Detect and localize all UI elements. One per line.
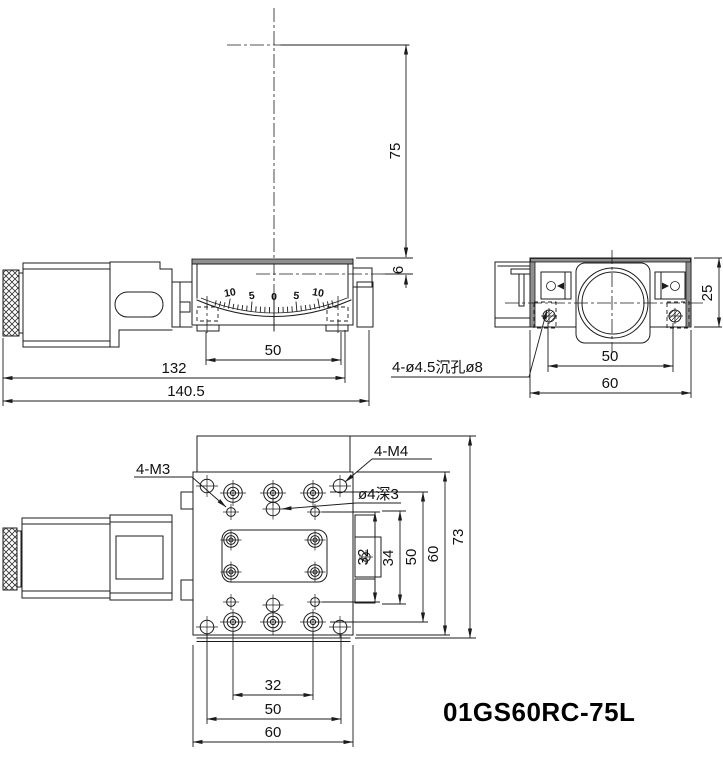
- dim-60-h: 60: [193, 645, 353, 747]
- end-view: 25 50 60 4-ø4.5沉孔ø8: [391, 250, 722, 398]
- dim-50v-text: 50: [403, 549, 420, 566]
- dim-50-side-text: 50: [265, 342, 282, 359]
- dim-75-text: 75: [387, 143, 404, 160]
- m3-callout: 4-M3: [134, 461, 226, 507]
- counterbore-note-text: 4-ø4.5沉孔ø8: [392, 359, 483, 376]
- drawing-canvas: 75 6 50 132 140.5 10 5 0 5: [0, 0, 723, 773]
- m3-label-text: 4-M3: [136, 461, 170, 478]
- dim-32-v: 32: [322, 512, 380, 602]
- micrometer-mount-end: [495, 262, 533, 327]
- dim-34v-text: 34: [380, 550, 397, 567]
- dim-32-h: 32: [233, 632, 313, 700]
- dim-50-side: 50: [206, 332, 341, 365]
- micrometer-body: [23, 263, 110, 347]
- dim-50-v: 50: [330, 492, 428, 622]
- scale-label-left-5: 5: [248, 290, 255, 302]
- dim-32h-text: 32: [265, 677, 282, 694]
- technical-drawing: 75 6 50 132 140.5 10 5 0 5: [0, 0, 723, 773]
- center-hole-label-text: ø4深3: [358, 486, 399, 503]
- dim-140-5-text: 140.5: [167, 383, 205, 400]
- scale-label-right-10: 10: [311, 286, 325, 300]
- mount-slot: [115, 292, 163, 317]
- dim-32v-text: 32: [355, 549, 372, 566]
- dim-60h-text: 60: [265, 724, 282, 741]
- micrometer-side: [3, 262, 192, 347]
- platform-overhang-top: [197, 436, 350, 472]
- platform-overhang-bottom: [197, 638, 350, 642]
- dim-25-text: 25: [699, 285, 716, 302]
- side-view: 75 6 50 132 140.5 10 5 0 5: [3, 8, 413, 406]
- dim-50-end-text: 50: [602, 348, 619, 365]
- scale-label-left-10: 10: [223, 286, 237, 300]
- right-adjuster-detail: [655, 272, 685, 299]
- part-number: 01GS60RC-75L: [443, 697, 635, 727]
- knurled-knob-plan: [3, 528, 17, 590]
- end-bracket-side: [353, 268, 373, 327]
- center-hole-callout: ø4深3: [282, 486, 401, 509]
- dim-60-end-text: 60: [602, 375, 619, 392]
- scale-label-0: 0: [271, 291, 277, 303]
- knurled-knob: [3, 270, 19, 336]
- m4-callout: 4-M4: [345, 443, 432, 482]
- dim-75: 75: [356, 45, 413, 258]
- dim-25: 25: [694, 258, 722, 327]
- dim-73v-text: 73: [450, 529, 467, 546]
- dim-132-text: 132: [161, 360, 186, 377]
- scale-label-right-5: 5: [293, 290, 300, 302]
- dim-6: 6: [385, 243, 413, 288]
- dim-50h-text: 50: [265, 701, 282, 718]
- m4-label-text: 4-M4: [374, 443, 408, 460]
- dim-60v-text: 60: [425, 546, 442, 563]
- mounting-holes: [196, 475, 373, 638]
- left-adjuster-detail: [541, 272, 571, 299]
- plan-view: 32 50 60 32 34 50: [3, 436, 476, 747]
- counterbore-callout: 4-ø4.5沉孔ø8: [391, 310, 547, 377]
- dim-6-text: 6: [390, 266, 407, 274]
- micrometer-plan: [3, 515, 172, 600]
